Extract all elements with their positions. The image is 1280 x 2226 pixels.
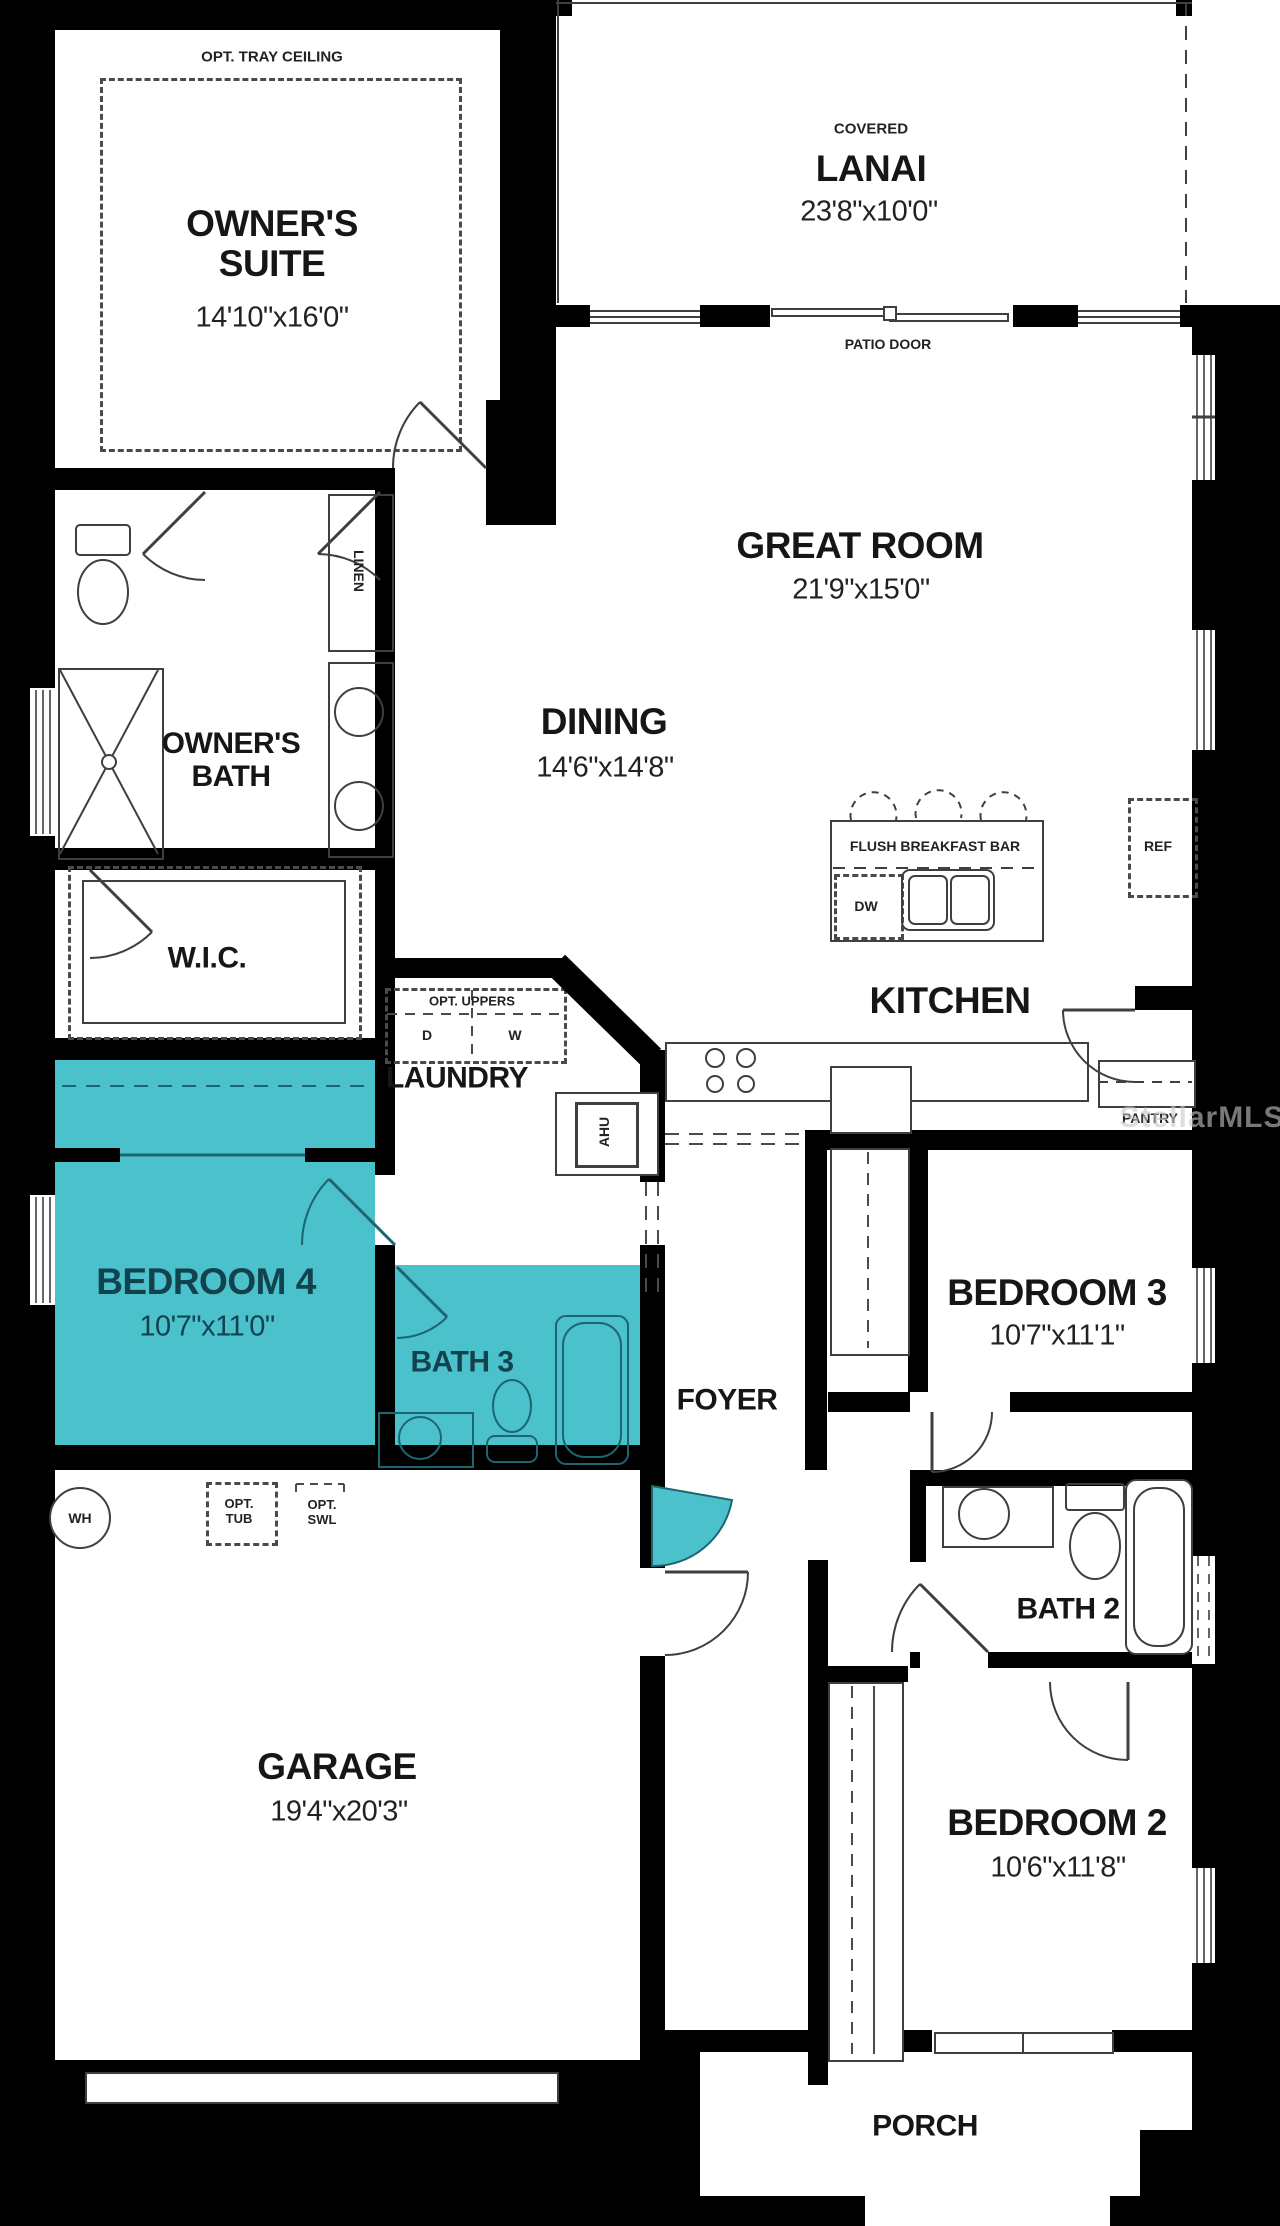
wall-garage-top bbox=[30, 1445, 665, 1470]
owners-suite-label: OWNER'S SUITE bbox=[147, 204, 397, 284]
lanai-label: LANAI bbox=[816, 149, 927, 189]
great-room-label: GREAT ROOM bbox=[736, 526, 983, 566]
pantry-closet bbox=[830, 1066, 912, 1134]
dryer-label: D bbox=[422, 1027, 432, 1043]
wall-bath2-bottom-a bbox=[910, 1652, 920, 1668]
water-heater-label: WH bbox=[68, 1510, 91, 1526]
wall-suite-lanai-step bbox=[486, 400, 556, 525]
ahu-label: AHU bbox=[596, 1117, 612, 1147]
bedroom4-window bbox=[30, 1195, 55, 1305]
wall-suite-top bbox=[30, 8, 508, 30]
patio-door-label: PATIO DOOR bbox=[845, 336, 932, 352]
cafe-window bbox=[1192, 630, 1215, 750]
bedroom3-dims: 10'7"x11'1" bbox=[989, 1320, 1124, 1353]
wall-laundry-top bbox=[375, 958, 565, 978]
bedroom2-dims: 10'6"x11'8" bbox=[990, 1852, 1125, 1885]
opt-swl-label: OPT. SWL bbox=[294, 1498, 350, 1528]
owners-bath-label: OWNER'S BATH bbox=[141, 727, 321, 793]
garage-door bbox=[85, 2072, 559, 2104]
wall-vestibule-porch-corner bbox=[665, 2052, 700, 2085]
wall-garage-right bbox=[640, 1470, 665, 2085]
wall-bath2-left-stub bbox=[910, 1470, 926, 1562]
wall-bath2-bottom-b bbox=[988, 1652, 1192, 1668]
washer-label: W bbox=[508, 1027, 521, 1043]
bath2-label: BATH 2 bbox=[1016, 1593, 1119, 1626]
wall-porch-right-step bbox=[1140, 2130, 1192, 2196]
laundry-label: LAUNDRY bbox=[386, 1062, 528, 1095]
opt-uppers-label: OPT. UPPERS bbox=[429, 995, 515, 1010]
garage-label: GARAGE bbox=[257, 1747, 416, 1787]
lanai-qualifier-label: COVERED bbox=[834, 121, 908, 138]
linen-label: LINEN bbox=[351, 550, 367, 592]
dining-dims: 14'6"x14'8" bbox=[536, 752, 673, 785]
kitchen-label: KITCHEN bbox=[870, 981, 1031, 1021]
wall-bed3-bottom bbox=[1010, 1392, 1192, 1412]
owners-suite-dims: 14'10"x16'0" bbox=[195, 302, 348, 335]
wall-bed2-closet-top bbox=[808, 1666, 908, 1682]
wall-bath3-right bbox=[640, 1245, 665, 1470]
wall-pantry-stub bbox=[1135, 986, 1192, 1010]
bedroom2-window bbox=[1192, 1868, 1215, 1963]
bedroom4-dims: 10'7"x11'0" bbox=[139, 1311, 274, 1344]
bath2-vanity bbox=[942, 1486, 1054, 1548]
top-right-exterior bbox=[1192, 0, 1280, 305]
bath2-opt-window bbox=[1192, 1556, 1215, 1664]
coat-closet bbox=[830, 1148, 910, 1356]
wall-bath2-top bbox=[910, 1470, 1192, 1486]
opt-tub-label: OPT. TUB bbox=[211, 1497, 267, 1527]
dishwasher-label: DW bbox=[854, 898, 877, 914]
wall-suite-lanai-divider bbox=[500, 0, 556, 440]
garage-dims: 19'4"x20'3" bbox=[270, 1796, 407, 1829]
foyer-label: FOYER bbox=[677, 1384, 778, 1417]
watermark: StellarMLS bbox=[1119, 1101, 1280, 1135]
owners-vanity bbox=[328, 662, 394, 858]
flush-breakfast-bar-label: FLUSH BREAKFAST BAR bbox=[850, 838, 1020, 854]
wall-wic-bed4-divider bbox=[30, 1038, 375, 1060]
bedroom4-highlight bbox=[55, 1060, 375, 1445]
patio-door-opening bbox=[770, 305, 1013, 327]
refrigerator-label: REF bbox=[1144, 838, 1172, 854]
bedroom4-label: BEDROOM 4 bbox=[96, 1262, 316, 1302]
wall-closet-bottom bbox=[828, 1392, 910, 1412]
wall-vestibule-right bbox=[808, 1560, 828, 2085]
wall-porch-top-right bbox=[1112, 2030, 1192, 2052]
bath3-vanity bbox=[378, 1412, 474, 1468]
wall-bed3-left bbox=[908, 1130, 928, 1392]
floor-plan: OPT. TRAY CEILING OWNER'S SUITE 14'10"x1… bbox=[0, 0, 1280, 2226]
opt-tray-ceiling-label: OPT. TRAY CEILING bbox=[201, 49, 343, 66]
wall-closet-column bbox=[805, 1130, 827, 1470]
wall-bed4-stub-right bbox=[305, 1148, 375, 1162]
bedroom2-closet bbox=[828, 1682, 904, 2062]
garage-entry-opening bbox=[640, 1568, 665, 1656]
great-room-window bbox=[1192, 355, 1215, 480]
wic-label: W.I.C. bbox=[168, 942, 247, 975]
bedroom3-window bbox=[1192, 1268, 1215, 1363]
patio-window-right bbox=[1078, 305, 1180, 327]
porch-label: PORCH bbox=[872, 2110, 978, 2143]
bedroom3-label: BEDROOM 3 bbox=[947, 1273, 1167, 1313]
dining-label: DINING bbox=[541, 702, 668, 742]
bath3-label: BATH 3 bbox=[410, 1346, 513, 1379]
owners-bath-window bbox=[30, 688, 55, 836]
great-room-dims: 21'9"x15'0" bbox=[792, 574, 929, 607]
lanai-dims: 23'8"x10'0" bbox=[800, 196, 937, 229]
patio-window-left bbox=[590, 305, 700, 327]
bedroom2-label: BEDROOM 2 bbox=[947, 1803, 1167, 1843]
porch-sidelite-panel bbox=[1022, 2032, 1114, 2054]
porch-step bbox=[865, 2196, 1110, 2226]
porch-door-panel bbox=[934, 2032, 1024, 2054]
wall-bed4-stub-left bbox=[55, 1148, 120, 1162]
wall-suite-bottom bbox=[30, 468, 375, 490]
